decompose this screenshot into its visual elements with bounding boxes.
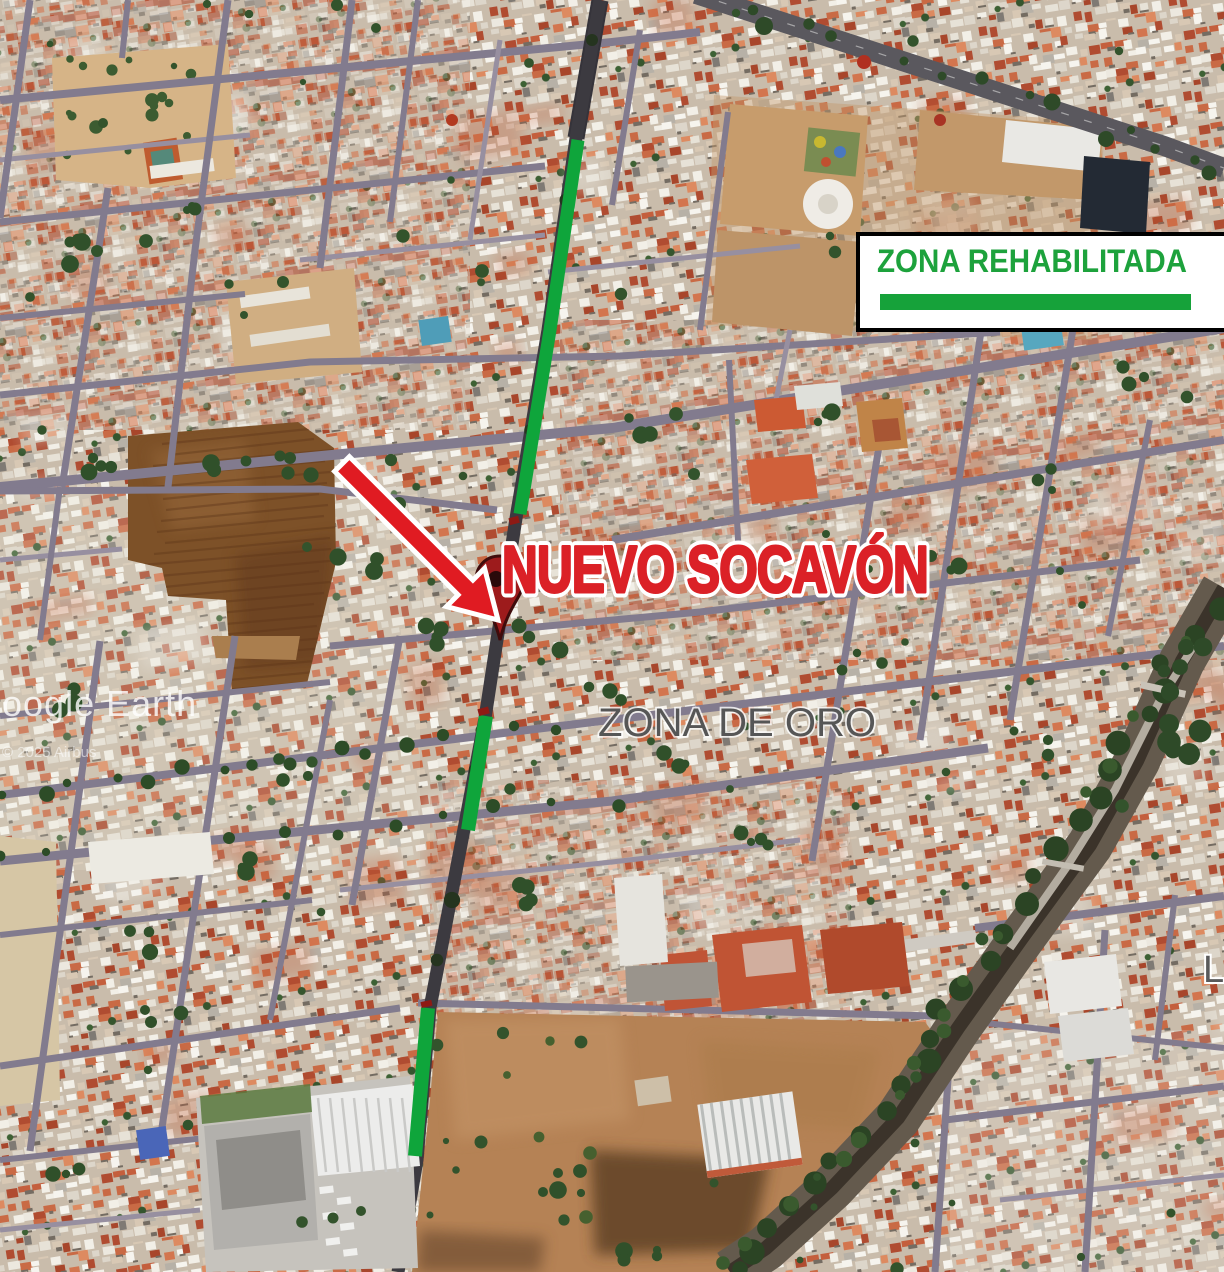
- svg-text:ZONA DE ORO: ZONA DE ORO: [598, 701, 876, 745]
- svg-text:NUEVO SOCAVÓN: NUEVO SOCAVÓN: [502, 532, 928, 606]
- svg-text:L: L: [1203, 949, 1224, 991]
- svg-text:© 2025 Airbus: © 2025 Airbus: [2, 744, 96, 761]
- svg-text:ZONA REHABILITADA: ZONA REHABILITADA: [877, 243, 1187, 279]
- svg-text:Google Earth: Google Earth: [0, 683, 197, 724]
